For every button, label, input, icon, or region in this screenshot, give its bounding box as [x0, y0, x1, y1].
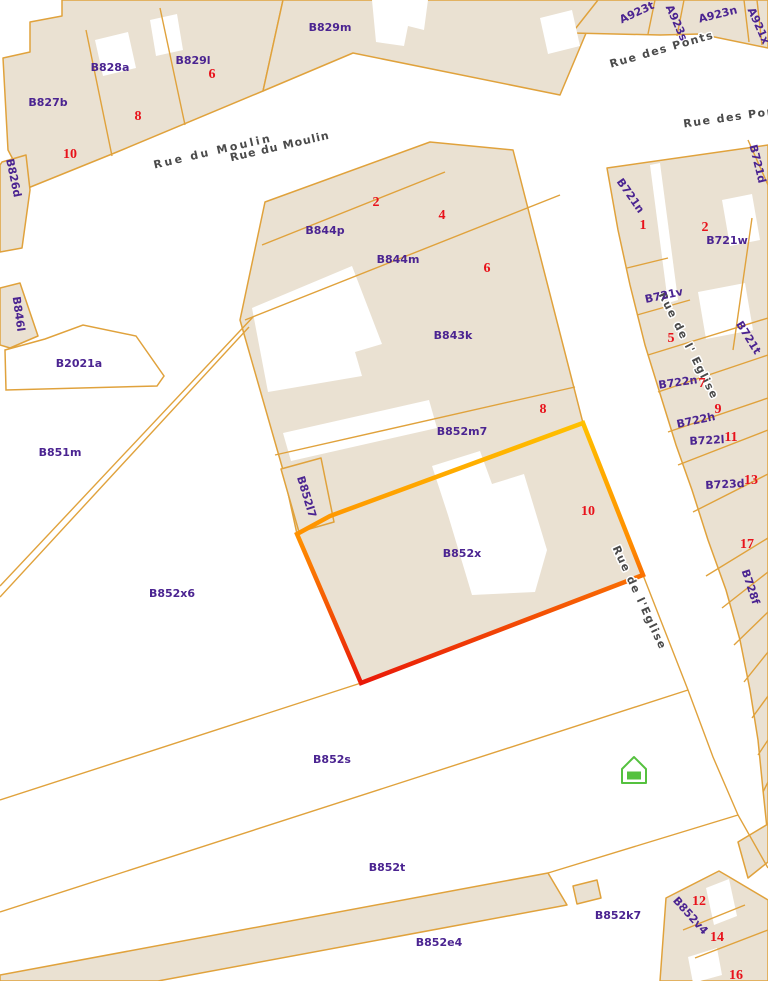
- house-number: 1: [640, 218, 647, 233]
- house-number: 17: [740, 537, 754, 552]
- house-number: 16: [729, 968, 743, 981]
- street-name-label: Rue des Ponts: [683, 103, 768, 131]
- parcel-label-B852x: B852x: [443, 547, 481, 560]
- house-number: 13: [744, 473, 758, 488]
- house-number: 7: [699, 376, 706, 391]
- house-number: 5: [668, 331, 675, 346]
- parcel-strip-near-street-exit: [738, 824, 768, 878]
- house-number: 8: [540, 402, 547, 417]
- house-number: 6: [209, 67, 216, 82]
- parcel-label-B829m: B829m: [309, 21, 352, 34]
- house-number: 6: [484, 261, 491, 276]
- parcel-label-B828a: B828a: [91, 61, 130, 74]
- building-poi-door: [627, 772, 641, 780]
- house-number: 2: [373, 195, 380, 210]
- house-number: 9: [715, 402, 722, 417]
- parcel-label-B721w: B721w: [706, 234, 748, 247]
- parcel-B852e4: [0, 873, 567, 981]
- parcel-label-B851m: B851m: [39, 446, 82, 459]
- parcel-label-B843k: B843k: [434, 329, 473, 342]
- house-number: 14: [710, 930, 724, 945]
- parcel-right-block-B721-B728: [607, 145, 768, 838]
- parcel-boundary-line: [548, 815, 738, 873]
- parcel-boundary-line: [0, 690, 688, 912]
- house-number: 2: [702, 220, 709, 235]
- parcel-label-B827b: B827b: [28, 96, 67, 109]
- house-number: 4: [439, 208, 446, 223]
- parcel-label-B723d: B723d: [705, 477, 745, 492]
- map-canvas[interactable]: Rue du MoulinRue du MoulinRue des PontsR…: [0, 0, 768, 981]
- cadastral-map: Rue du MoulinRue du MoulinRue des PontsR…: [0, 0, 768, 981]
- house-number: 10: [63, 147, 77, 162]
- parcel-label-B852k7: B852k7: [595, 909, 641, 922]
- parcel-small-building-B852k7: [573, 880, 601, 904]
- parcel-label-B844p: B844p: [305, 224, 344, 237]
- parcel-label-B852e4: B852e4: [416, 936, 463, 949]
- parcel-label-B852s: B852s: [313, 753, 351, 766]
- parcel-label-B2021a: B2021a: [56, 357, 102, 370]
- parcel-label-B852t: B852t: [369, 861, 406, 874]
- parcel-label-B852m7: B852m7: [437, 425, 487, 438]
- parcel-label-B844m: B844m: [377, 253, 420, 266]
- parcel-label-B829l: B829l: [175, 54, 210, 67]
- house-number: 12: [692, 894, 706, 909]
- house-number: 11: [724, 430, 737, 445]
- parcel-label-B722l: B722l: [689, 433, 725, 448]
- house-number: 8: [135, 109, 142, 124]
- house-number: 10: [581, 504, 595, 519]
- parcel-label-B852x6: B852x6: [149, 587, 195, 600]
